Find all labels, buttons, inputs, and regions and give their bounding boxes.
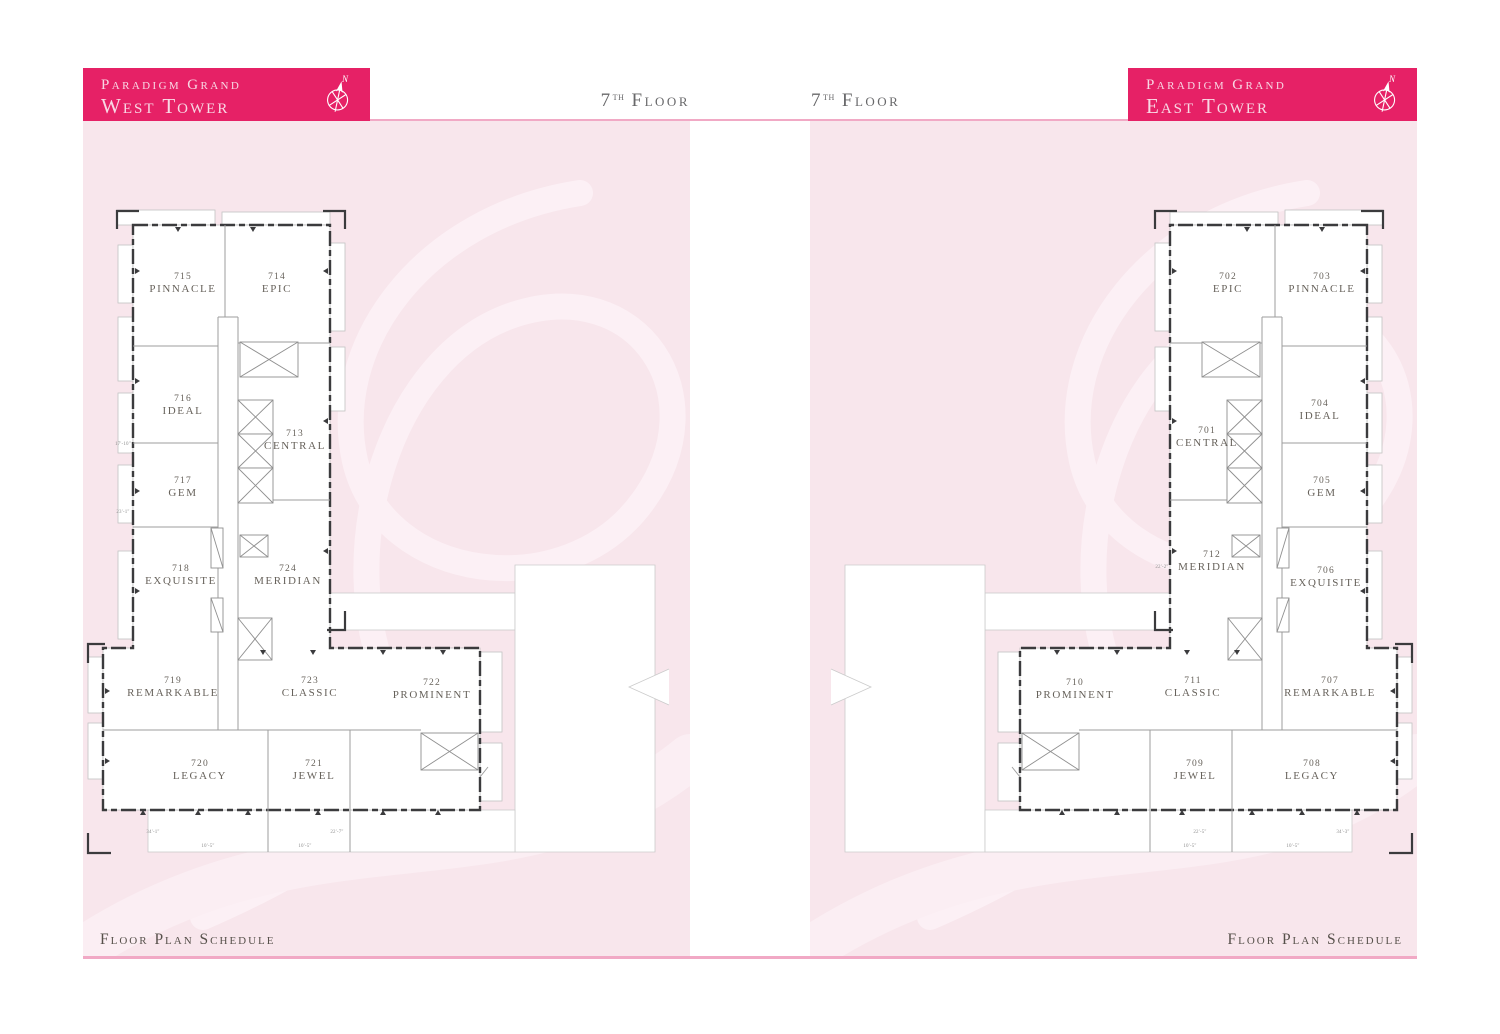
unit-name: PROMINENT [1036, 689, 1115, 701]
unit-name: CENTRAL [264, 440, 326, 452]
unit-name: GEM [168, 487, 197, 499]
unit-number: 718 [172, 564, 190, 574]
unit-number: 701 [1198, 426, 1216, 436]
unit-number: 703 [1313, 272, 1331, 282]
dimension-label: 23'-1" [116, 510, 129, 515]
unit-number: 708 [1303, 759, 1321, 769]
unit-number: 720 [191, 759, 209, 769]
west-floor-plan-drawing: 715PINNACLE714EPIC716IDEAL713CENTRAL717G… [83, 121, 690, 956]
unit-name: MERIDIAN [254, 575, 322, 587]
east-floor-plan-panel: 702EPIC703PINNACLE701CENTRAL704IDEAL705G… [810, 121, 1417, 956]
east-floor-plan-drawing: 702EPIC703PINNACLE701CENTRAL704IDEAL705G… [810, 121, 1417, 956]
unit-name: EXQUISITE [145, 575, 217, 587]
pink-divider-bottom [83, 956, 1417, 959]
unit-number: 709 [1186, 759, 1204, 769]
unit-name: PINNACLE [149, 283, 216, 295]
footer-schedule-east: Floor Plan Schedule [1100, 931, 1403, 949]
unit-number: 717 [174, 476, 192, 486]
floor-word: Floor [842, 90, 900, 111]
dimension-label: 10'-5" [201, 844, 214, 849]
unit-name: LEGACY [1285, 770, 1339, 782]
unit-name: CENTRAL [1176, 437, 1238, 449]
unit-name: CLASSIC [1165, 687, 1221, 699]
unit-name: PINNACLE [1288, 283, 1355, 295]
unit-name: IDEAL [1300, 410, 1341, 422]
unit-number: 721 [305, 759, 323, 769]
floor-number: 7 [601, 90, 613, 111]
unit-number: 710 [1066, 678, 1084, 688]
unit-name: REMARKABLE [127, 687, 219, 699]
unit-name: GEM [1307, 487, 1336, 499]
dimension-label: 10'-5" [1183, 844, 1196, 849]
unit-name: EPIC [262, 283, 292, 295]
floor-heading-west: 7thFloor [555, 90, 690, 112]
dimension-label: 34'-1" [146, 830, 159, 835]
unit-number: 719 [164, 676, 182, 686]
dimension-label: 10'-5" [298, 844, 311, 849]
footer-schedule-west: Floor Plan Schedule [100, 931, 276, 949]
unit-number: 715 [174, 272, 192, 282]
unit-name: CLASSIC [282, 687, 338, 699]
unit-number: 723 [301, 676, 319, 686]
unit-number: 702 [1219, 272, 1237, 282]
compass-north-label: N [1388, 74, 1396, 84]
dimension-label: 22'-5" [1193, 830, 1206, 835]
floor-ordinal: th [823, 91, 835, 103]
unit-number: 714 [268, 272, 286, 282]
unit-name: LEGACY [173, 770, 227, 782]
unit-number: 707 [1321, 676, 1339, 686]
unit-number: 704 [1311, 399, 1329, 409]
west-floor-plan-panel: 715PINNACLE714EPIC716IDEAL713CENTRAL717G… [83, 121, 690, 956]
unit-name: EPIC [1213, 283, 1243, 295]
east-tower-banner: Paradigm Grand East Tower N [1128, 68, 1417, 121]
compass-north-label: N [341, 74, 349, 84]
unit-number: 724 [279, 564, 297, 574]
floor-number: 7 [811, 90, 823, 111]
unit-number: 711 [1184, 676, 1202, 686]
unit-name: JEWEL [293, 770, 336, 782]
unit-number: 705 [1313, 476, 1331, 486]
unit-number: 722 [423, 678, 441, 688]
compass-icon: N [1366, 72, 1404, 118]
unit-number: 716 [174, 394, 192, 404]
unit-number: 706 [1317, 566, 1335, 576]
dimension-label: 22'-2" [1155, 565, 1168, 570]
floor-ordinal: th [613, 91, 625, 103]
dimension-label: 10'-5" [1286, 844, 1299, 849]
west-tower-banner: Paradigm Grand West Tower N [83, 68, 370, 121]
unit-name: MERIDIAN [1178, 561, 1246, 573]
dimension-label: 22'-7" [330, 830, 343, 835]
unit-number: 713 [286, 429, 304, 439]
floor-word: Floor [632, 90, 690, 111]
unit-name: EXQUISITE [1290, 577, 1362, 589]
unit-number: 712 [1203, 550, 1221, 560]
unit-name: PROMINENT [393, 689, 472, 701]
unit-name: IDEAL [163, 405, 204, 417]
dimension-label: 34'-3" [1336, 830, 1349, 835]
dimension-label: 17'-10" [115, 442, 131, 447]
unit-name: REMARKABLE [1284, 687, 1376, 699]
floor-heading-east: 7thFloor [811, 90, 946, 112]
unit-name: JEWEL [1174, 770, 1217, 782]
compass-icon: N [319, 72, 357, 118]
